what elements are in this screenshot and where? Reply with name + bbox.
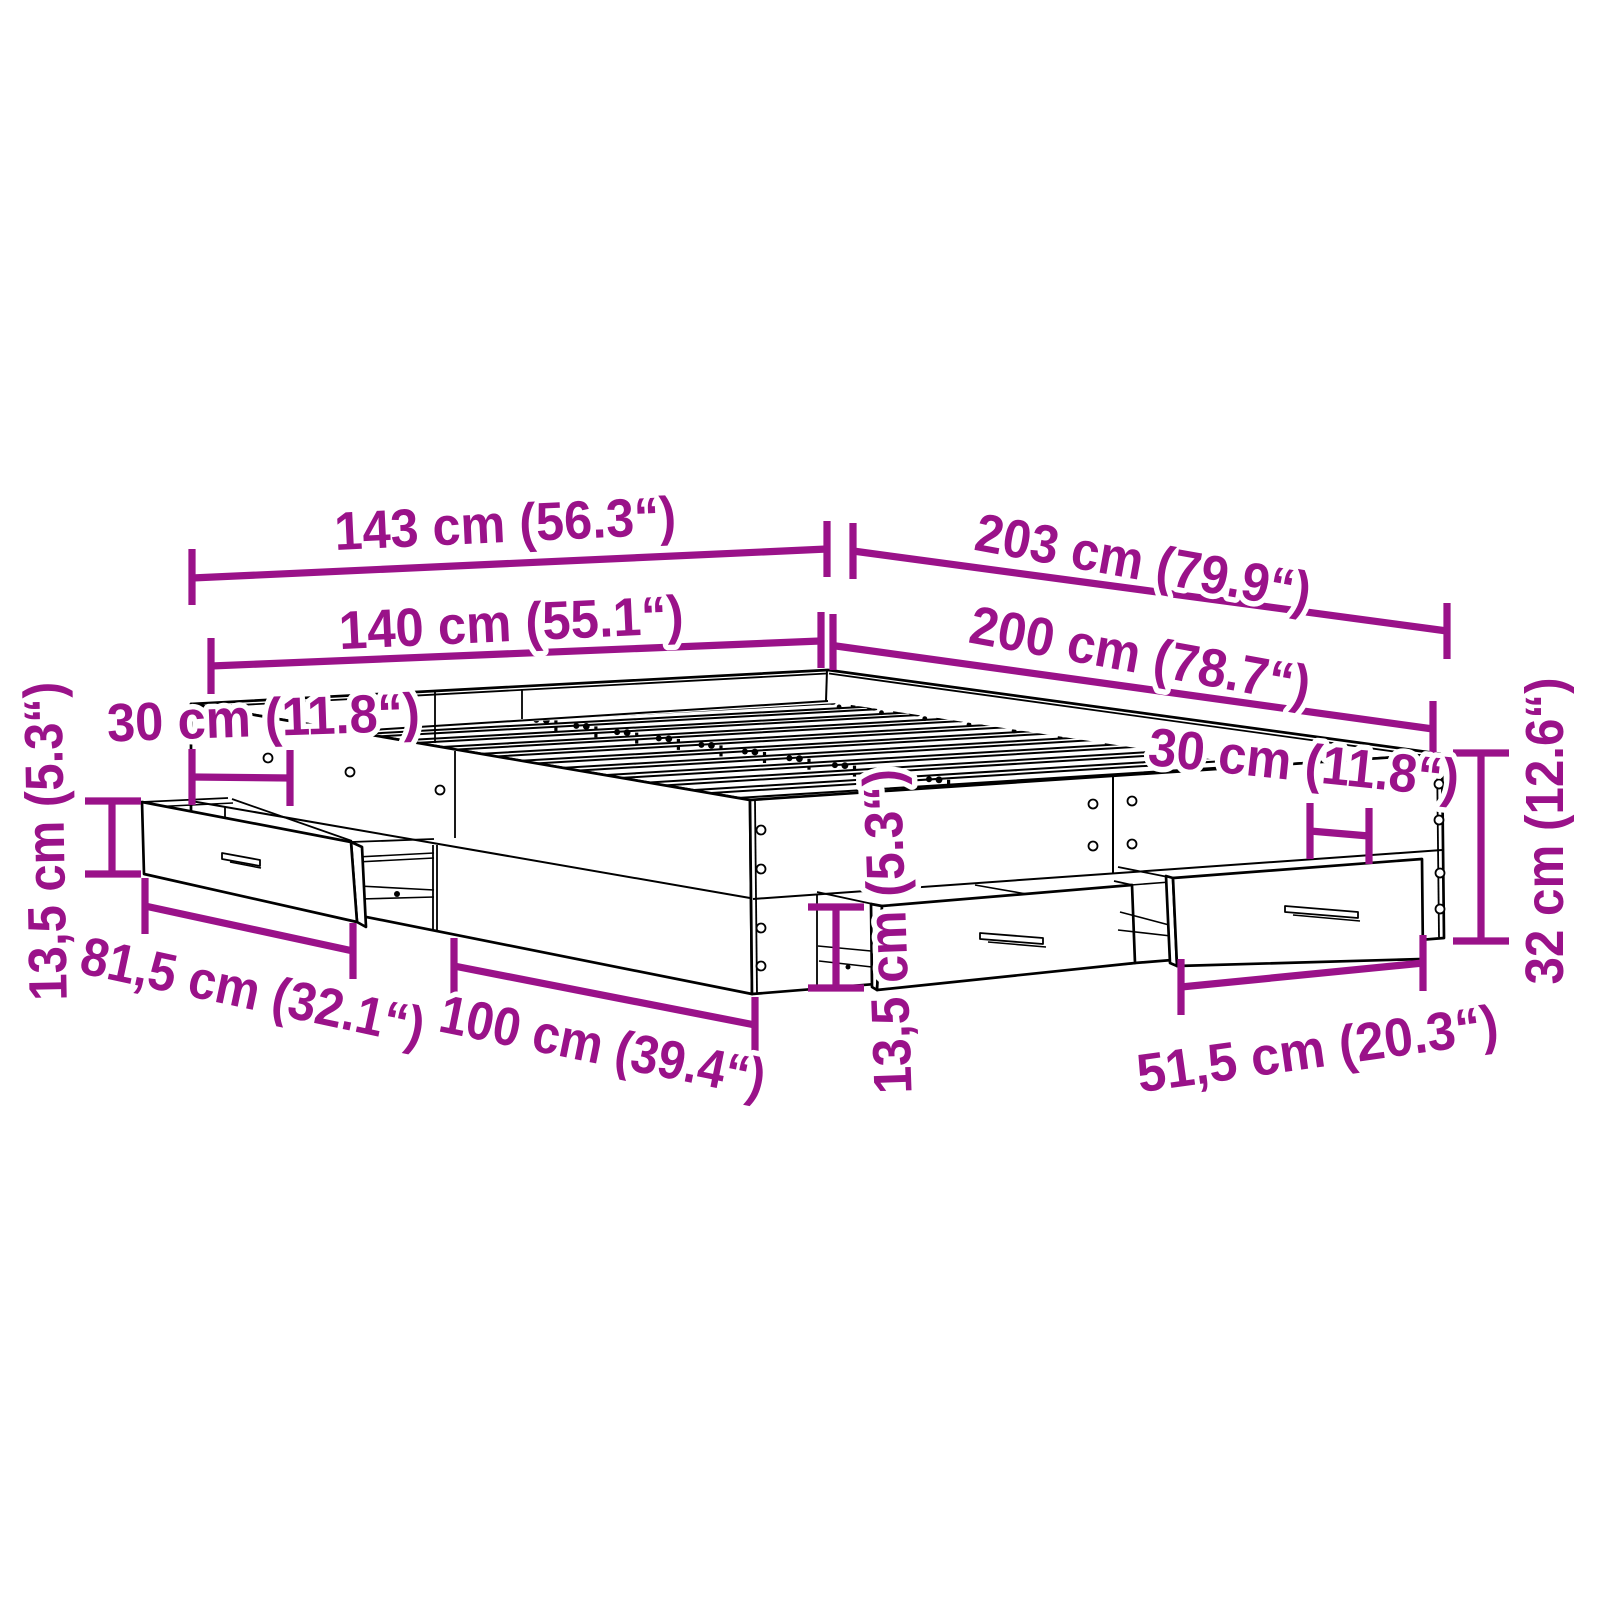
svg-text:13,5 cm (5.3“): 13,5 cm (5.3“) [13,681,79,1001]
svg-text:32 cm (12.6“): 32 cm (12.6“) [1515,678,1575,985]
svg-text:30 cm (11.8“): 30 cm (11.8“) [106,683,421,754]
svg-text:13,5 cm (5.3“): 13,5 cm (5.3“) [852,768,923,1095]
